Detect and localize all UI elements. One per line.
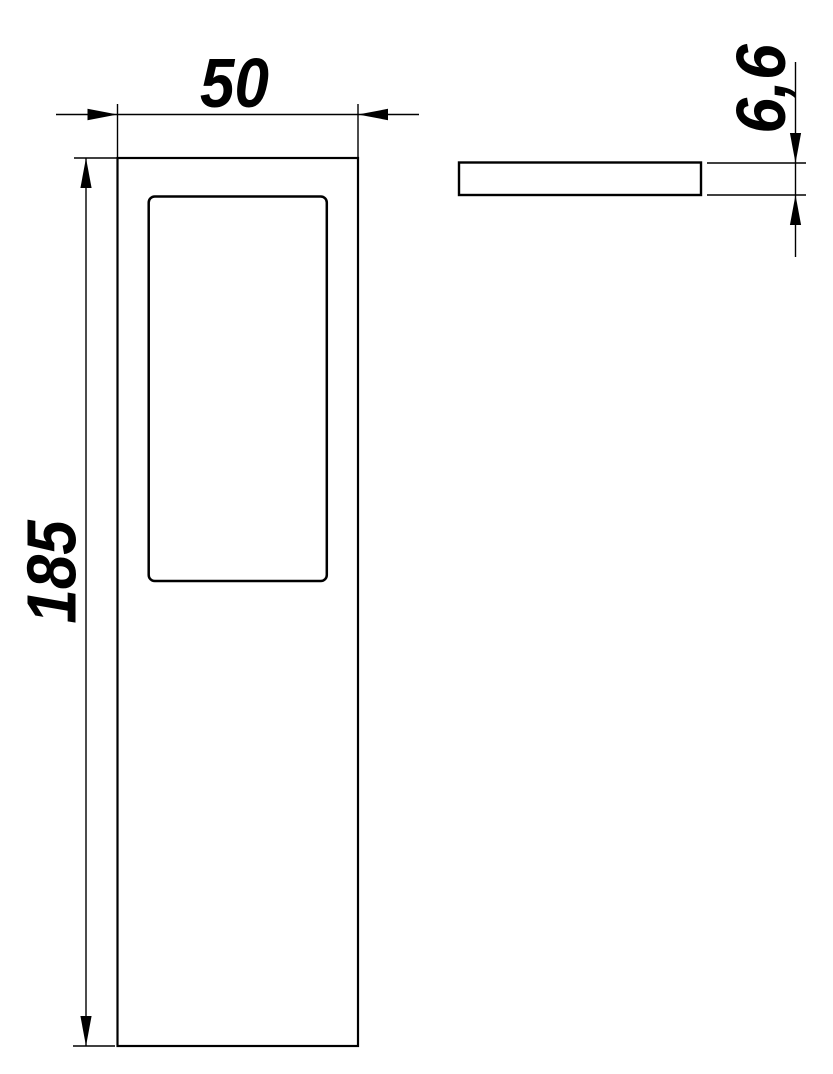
svg-text:6,6: 6,6 bbox=[723, 44, 801, 134]
svg-text:185: 185 bbox=[13, 519, 91, 624]
svg-text:50: 50 bbox=[200, 45, 269, 123]
